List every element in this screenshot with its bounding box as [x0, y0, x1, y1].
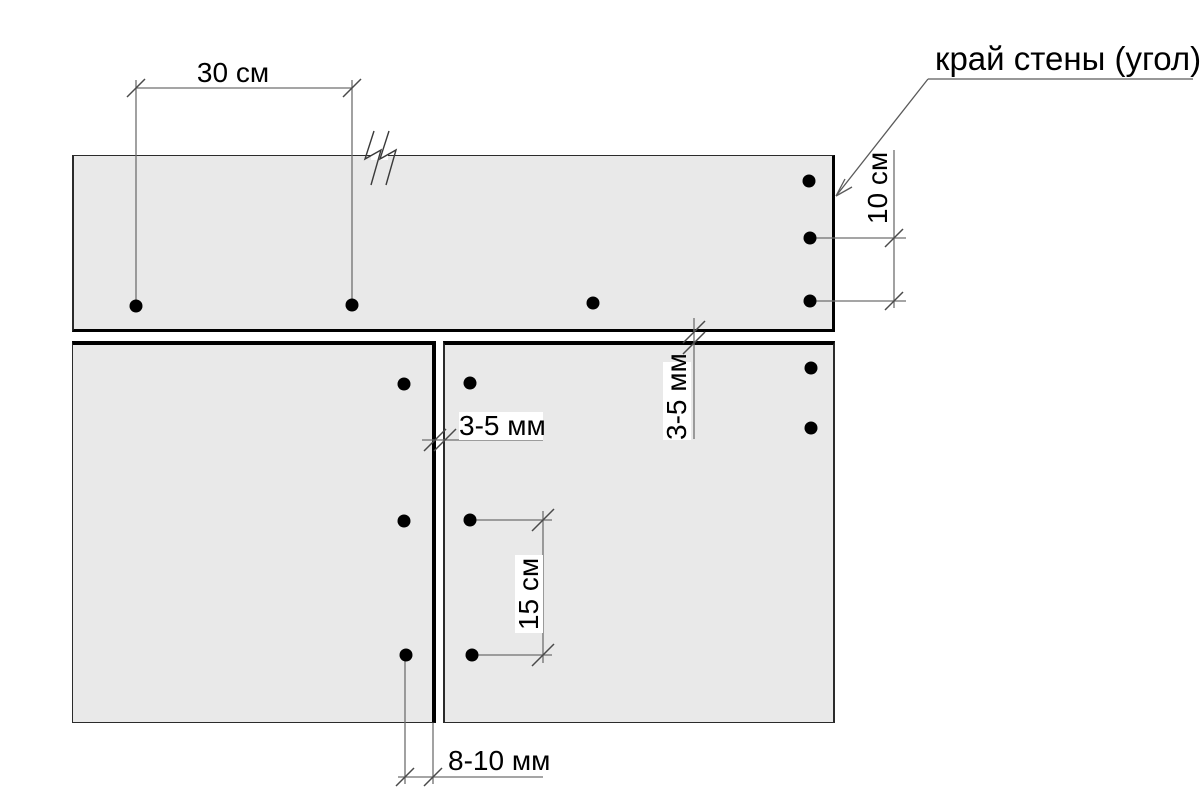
- dim-label-8-10mm: 8-10 мм: [448, 746, 548, 776]
- dim-10cm-ticks: [885, 229, 903, 310]
- panel-top: [72, 155, 835, 332]
- panel-bottom-right: [443, 341, 835, 723]
- panel-bottom-left: [72, 341, 436, 723]
- drywall-fastening-diagram: 30 см край стены (угол) 10 см 3-5 мм 3-5…: [0, 0, 1200, 807]
- dim-label-30cm: 30 см: [153, 58, 313, 88]
- wall-edge-label: край стены (угол): [935, 41, 1200, 77]
- dim-8-10mm-ticks: [396, 768, 442, 786]
- dim-label-10cm: 10 см: [863, 148, 893, 228]
- dim-label-15cm: 15 см: [515, 555, 543, 633]
- dim-label-3-5mm-vertical: 3-5 мм: [663, 362, 691, 440]
- dim-label-3-5mm-horizontal: 3-5 мм: [459, 412, 543, 440]
